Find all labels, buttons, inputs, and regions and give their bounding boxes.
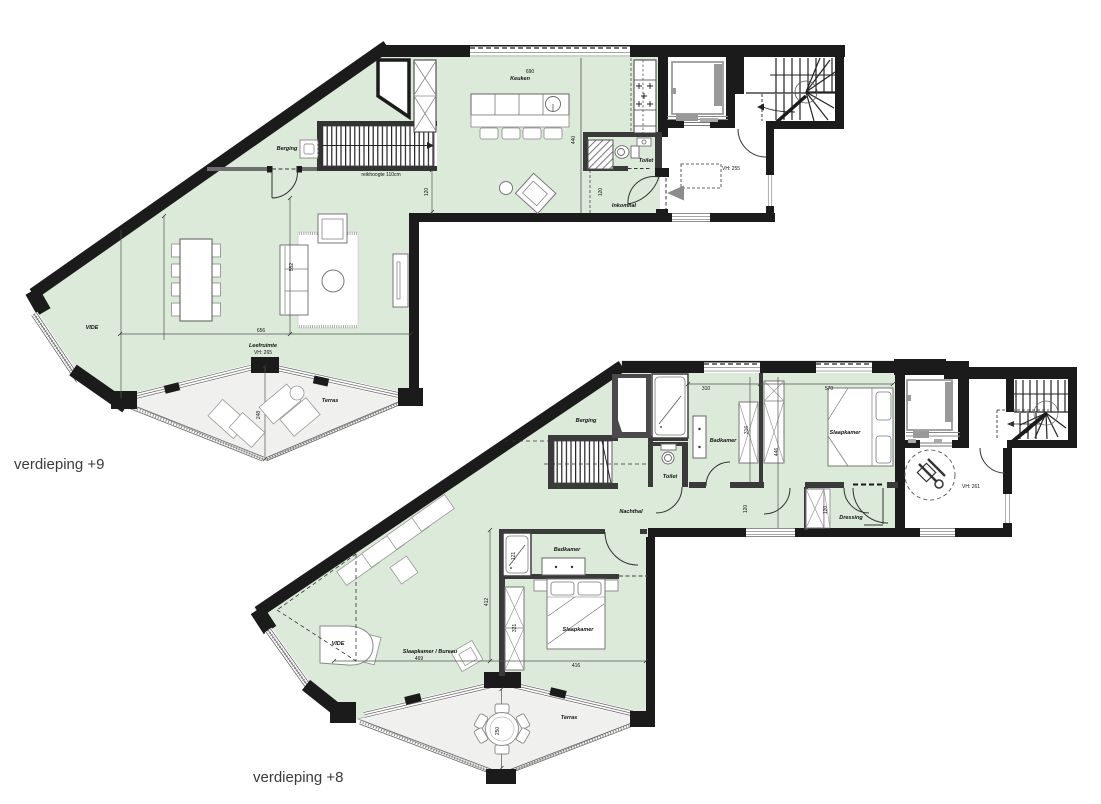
svg-text:250: 250 — [495, 727, 501, 736]
svg-text:316: 316 — [744, 426, 750, 435]
svg-text:VH: 265: VH: 265 — [254, 350, 272, 356]
svg-text:Badkamer: Badkamer — [710, 438, 737, 444]
svg-text:656: 656 — [257, 328, 266, 334]
svg-text:Nachthal: Nachthal — [619, 509, 643, 515]
svg-text:Leefruimte: Leefruimte — [249, 343, 277, 349]
svg-text:690: 690 — [526, 69, 535, 75]
svg-text:verdieping +9: verdieping +9 — [14, 456, 104, 473]
svg-text:Toilet: Toilet — [663, 474, 679, 480]
svg-text:Toilet: Toilet — [639, 158, 655, 164]
svg-text:Slaapkamer / Bureau: Slaapkamer / Bureau — [403, 649, 458, 655]
svg-text:412: 412 — [484, 598, 490, 607]
svg-text:reikhoogte 110cm: reikhoogte 110cm — [361, 172, 400, 178]
svg-text:Dressing: Dressing — [839, 515, 863, 521]
svg-text:Slaapkamer: Slaapkamer — [563, 627, 595, 633]
svg-text:VIDE: VIDE — [86, 325, 99, 331]
svg-text:Terras: Terras — [561, 715, 578, 721]
svg-text:Berging: Berging — [576, 418, 597, 424]
svg-text:VH: 261: VH: 261 — [962, 484, 980, 490]
svg-text:120: 120 — [598, 188, 604, 197]
svg-text:Berging: Berging — [277, 146, 298, 152]
svg-text:Badkamer: Badkamer — [554, 547, 581, 553]
svg-text:verdieping +8: verdieping +8 — [253, 769, 343, 786]
svg-text:310: 310 — [702, 386, 711, 392]
svg-text:120: 120 — [743, 505, 749, 514]
svg-text:446: 446 — [774, 448, 780, 457]
svg-text:121: 121 — [511, 552, 517, 561]
svg-text:416: 416 — [572, 663, 581, 669]
svg-text:440: 440 — [571, 136, 577, 145]
svg-text:Keuken: Keuken — [510, 76, 531, 82]
svg-text:248: 248 — [256, 411, 262, 420]
svg-text:Terras: Terras — [322, 398, 339, 404]
svg-text:Inkomhal: Inkomhal — [612, 203, 637, 209]
svg-text:120: 120 — [424, 188, 430, 197]
svg-text:120: 120 — [823, 506, 829, 515]
svg-text:321: 321 — [512, 624, 518, 633]
svg-text:570: 570 — [825, 386, 834, 392]
svg-text:VH: 255: VH: 255 — [722, 166, 740, 172]
svg-text:469: 469 — [415, 656, 424, 662]
svg-text:552: 552 — [289, 263, 295, 272]
svg-text:VIDE: VIDE — [332, 641, 345, 647]
svg-text:Slaapkamer: Slaapkamer — [830, 430, 862, 436]
